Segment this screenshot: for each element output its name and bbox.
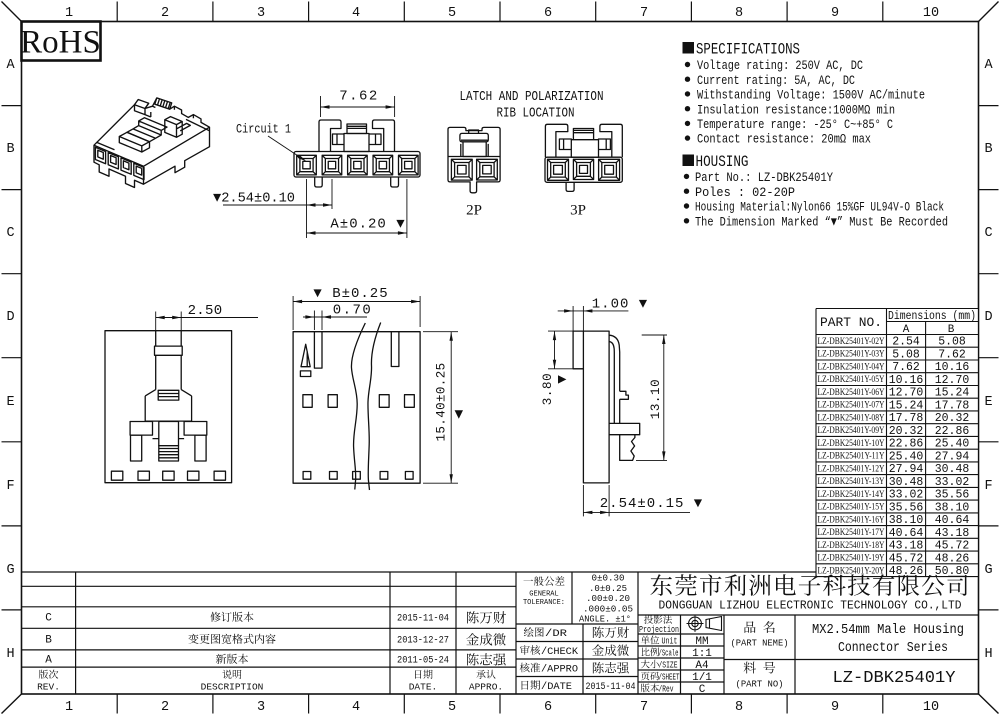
svg-text:45.72: 45.72 [889,552,924,565]
svg-text:15.40±0.25: 15.40±0.25 [435,362,449,441]
svg-text:/APPRO: /APPRO [541,664,578,676]
svg-text:15.24: 15.24 [935,387,970,400]
svg-text:Withstanding Voltage: 1500V AC: Withstanding Voltage: 1500V AC/minute [697,88,925,103]
svg-text:5: 5 [448,6,456,21]
svg-text:0.70: 0.70 [333,303,373,319]
svg-text:.00±0.20: .00±0.20 [586,594,630,604]
svg-text:H: H [6,647,14,662]
svg-text:A±0.20 ▼: A±0.20 ▼ [330,217,405,233]
svg-text:B: B [984,142,992,157]
svg-text:6: 6 [544,700,552,715]
svg-text:Poles : 02-20P: Poles : 02-20P [695,185,795,200]
svg-text:B: B [45,635,52,647]
svg-text:LZ-DBK25401Y-09Y: LZ-DBK25401Y-09Y [818,426,885,436]
svg-text:LZ-DBK25401Y-07Y: LZ-DBK25401Y-07Y [818,401,885,411]
svg-text:/CHECK: /CHECK [541,646,578,658]
svg-text:2: 2 [161,6,169,21]
svg-text:H: H [984,647,992,662]
svg-text:(PART NEME): (PART NEME) [731,639,789,649]
svg-text:C: C [6,226,14,241]
svg-text:1: 1 [65,6,73,21]
svg-text:LZ-DBK25401Y-18Y: LZ-DBK25401Y-18Y [818,541,885,551]
svg-text:2013-12-27: 2013-12-27 [397,635,449,647]
svg-text:35.56: 35.56 [889,501,924,514]
svg-text:C: C [45,613,52,625]
svg-text:5: 5 [448,700,456,715]
svg-text:1/1: 1/1 [692,672,712,684]
svg-text:2.54: 2.54 [892,336,920,349]
svg-text:3: 3 [257,700,265,715]
svg-text:10: 10 [923,6,939,21]
svg-text:LZ-DBK25401Y-03Y: LZ-DBK25401Y-03Y [818,350,885,360]
svg-text:20.32: 20.32 [935,412,970,425]
svg-text:6: 6 [544,6,552,21]
svg-text:LZ-DBK25401Y-14Y: LZ-DBK25401Y-14Y [818,490,885,500]
svg-text:The Dimension Marked “▼” Must: The Dimension Marked “▼” Must Be Recorde… [695,214,948,229]
svg-text:27.94: 27.94 [935,450,970,463]
svg-text:C: C [984,226,992,241]
svg-text:8: 8 [735,700,743,715]
svg-text:17.78: 17.78 [889,412,924,425]
svg-text:LZ-DBK25401Y-12Y: LZ-DBK25401Y-12Y [818,464,885,474]
svg-text:2.54±0.15 ▼: 2.54±0.15 ▼ [600,496,703,512]
svg-text:DATE.: DATE. [409,682,438,693]
svg-text:LZ-DBK25401Y-05Y: LZ-DBK25401Y-05Y [818,375,885,385]
svg-text:TOLERANCE:: TOLERANCE: [523,599,565,607]
svg-text:10.16: 10.16 [889,374,924,387]
svg-text:Voltage rating: 250V AC, DC: Voltage rating: 250V AC, DC [697,58,863,73]
svg-text:7.62: 7.62 [339,89,379,105]
svg-text:A4: A4 [695,660,709,672]
svg-text:GENERAL: GENERAL [529,591,558,599]
svg-text:25.40: 25.40 [935,438,970,451]
svg-text:E: E [6,395,14,410]
svg-text:Insulation resistance:1000MΩ m: Insulation resistance:1000MΩ min [697,102,895,117]
svg-text:/Rev: /Rev [659,685,674,695]
svg-text:15.24: 15.24 [889,399,924,412]
svg-text:F: F [984,479,992,494]
svg-text:9: 9 [831,6,839,21]
svg-text:30.48: 30.48 [889,476,924,489]
svg-text:3P: 3P [570,203,586,219]
svg-text:SPECIFICATIONS: SPECIFICATIONS [696,41,800,59]
svg-text:.0±0.25: .0±0.25 [589,584,627,594]
svg-text:40.64: 40.64 [889,527,924,540]
svg-text:A: A [903,324,910,336]
svg-text:/DATE: /DATE [541,681,572,693]
svg-text:LZ-DBK25401Y-08Y: LZ-DBK25401Y-08Y [818,413,885,423]
svg-text:8: 8 [735,6,743,21]
svg-text:LZ-DBK25401Y-02Y: LZ-DBK25401Y-02Y [818,337,885,347]
svg-text:2011-05-24: 2011-05-24 [397,655,449,667]
svg-text:REV.: REV. [37,682,60,693]
svg-text:22.86: 22.86 [935,425,970,438]
svg-text:45.72: 45.72 [935,540,970,553]
svg-text:▼2.54±0.10: ▼2.54±0.10 [213,191,295,207]
svg-text:C: C [699,684,706,696]
svg-text:9: 9 [831,700,839,715]
svg-text:2015-11-04: 2015-11-04 [397,613,449,625]
svg-text:LZ-DBK25401Y: LZ-DBK25401Y [833,668,956,687]
svg-text:3: 3 [257,6,265,21]
svg-text:ANGLE. ±1°: ANGLE. ±1° [579,615,631,625]
svg-text:Projection: Projection [639,625,679,635]
svg-text:LZ-DBK25401Y-20Y: LZ-DBK25401Y-20Y [818,566,885,576]
svg-text:2.50: 2.50 [188,303,223,319]
svg-text:48.26: 48.26 [935,552,970,565]
svg-text:/Scale: /Scale [659,649,679,659]
svg-text:35.56: 35.56 [935,489,970,502]
svg-text:PART NO.: PART NO. [820,316,882,330]
svg-text:Connector Series: Connector Series [838,641,948,656]
svg-text:HOUSING: HOUSING [696,153,749,171]
svg-text:33.02: 33.02 [935,476,970,489]
svg-text:LATCH AND POLARIZATION: LATCH AND POLARIZATION [460,90,604,105]
svg-text:G: G [984,563,992,578]
svg-text:D: D [984,310,992,325]
svg-text:DONGGUAN LIZHOU ELECTRONIC TEC: DONGGUAN LIZHOU ELECTRONIC TECHNOLOGY CO… [659,600,962,613]
svg-text:1:1: 1:1 [692,648,712,660]
svg-text:B: B [948,324,955,336]
svg-text:LZ-DBK25401Y-04Y: LZ-DBK25401Y-04Y [818,363,885,373]
svg-text:1: 1 [65,700,73,715]
svg-text:B: B [6,142,14,157]
svg-text:D: D [6,310,14,325]
svg-text:4: 4 [352,700,360,715]
svg-text:3.80: 3.80 [541,373,555,405]
svg-text:/SHEET: /SHEET [659,673,680,683]
svg-text:LZ-DBK25401Y-15Y: LZ-DBK25401Y-15Y [818,503,885,513]
svg-text:7.62: 7.62 [938,348,966,361]
svg-text:5.08: 5.08 [938,336,966,349]
svg-text:RoHS: RoHS [20,25,101,61]
svg-text:Contact resistance: 20mΩ max: Contact resistance: 20mΩ max [697,132,871,147]
svg-text:0±0.30: 0±0.30 [592,574,625,584]
svg-text:Current rating: 5A, AC, DC: Current rating: 5A, AC, DC [697,73,855,88]
svg-text:LZ-DBK25401Y-06Y: LZ-DBK25401Y-06Y [818,388,885,398]
svg-text:Temperature range: -25° C~+85°: Temperature range: -25° C~+85° C [697,117,893,132]
svg-text:LZ-DBK25401Y-10Y: LZ-DBK25401Y-10Y [818,439,885,449]
svg-text:38.10: 38.10 [889,514,924,527]
svg-text:10: 10 [923,700,939,715]
svg-text:A: A [45,655,52,667]
svg-text:5.08: 5.08 [892,348,920,361]
svg-text:2: 2 [161,700,169,715]
svg-text:.000±0.05: .000±0.05 [583,604,633,614]
svg-text:APPRO.: APPRO. [469,682,503,693]
svg-text:Unit: Unit [662,637,678,647]
svg-text:33.02: 33.02 [889,489,924,502]
svg-text:27.94: 27.94 [889,463,924,476]
svg-text:10.16: 10.16 [935,361,970,374]
svg-text:7.62: 7.62 [892,361,920,374]
svg-text:17.78: 17.78 [935,399,970,412]
svg-text:LZ-DBK25401Y-17Y: LZ-DBK25401Y-17Y [818,528,885,538]
svg-text:DESCRIPTION: DESCRIPTION [201,682,264,693]
svg-text:7: 7 [640,700,648,715]
svg-text:1.00 ▼: 1.00 ▼ [592,297,648,313]
svg-text:7: 7 [640,6,648,21]
svg-text:E: E [984,395,992,410]
svg-text:MM: MM [695,636,708,648]
svg-text:A: A [6,58,15,73]
svg-text:/DR: /DR [545,628,567,640]
svg-text:43.18: 43.18 [935,527,970,540]
svg-text:Part No.: LZ-DBK25401Y: Part No.: LZ-DBK25401Y [695,170,833,185]
svg-text:30.48: 30.48 [935,463,970,476]
svg-text:RIB LOCATION: RIB LOCATION [497,107,575,122]
svg-text:Dimensions (mm): Dimensions (mm) [888,309,976,323]
svg-text:4: 4 [352,6,360,21]
svg-text:MX2.54mm Male Housing: MX2.54mm Male Housing [812,623,964,638]
svg-text:12.70: 12.70 [935,374,970,387]
svg-text:G: G [6,563,14,578]
svg-text:F: F [6,479,14,494]
svg-text:12.70: 12.70 [889,387,924,400]
svg-text:48.26: 48.26 [889,565,924,578]
svg-text:22.86: 22.86 [889,438,924,451]
svg-text:▼ B±0.25: ▼ B±0.25 [313,286,388,302]
svg-text:/SIZE: /SIZE [659,661,678,671]
svg-text:13.10: 13.10 [649,379,663,420]
svg-text:20.32: 20.32 [889,425,924,438]
svg-text:Circuit 1: Circuit 1 [236,123,291,137]
svg-text:2P: 2P [466,203,482,219]
svg-text:43.18: 43.18 [889,540,924,553]
svg-text:LZ-DBK25401Y-13Y: LZ-DBK25401Y-13Y [818,477,885,487]
svg-text:2015-11-04: 2015-11-04 [586,681,636,693]
svg-text:(PART NO): (PART NO) [736,680,784,690]
svg-text:LZ-DBK25401Y-19Y: LZ-DBK25401Y-19Y [818,554,885,564]
svg-text:Housing Material:Nylon66 15%GF: Housing Material:Nylon66 15%GF UL94V-O B… [695,200,944,215]
svg-text:LZ-DBK25401Y-11Y: LZ-DBK25401Y-11Y [818,452,885,462]
svg-text:38.10: 38.10 [935,501,970,514]
svg-text:A: A [984,58,993,73]
svg-text:LZ-DBK25401Y-16Y: LZ-DBK25401Y-16Y [818,515,885,525]
svg-text:40.64: 40.64 [935,514,970,527]
svg-text:25.40: 25.40 [889,450,924,463]
